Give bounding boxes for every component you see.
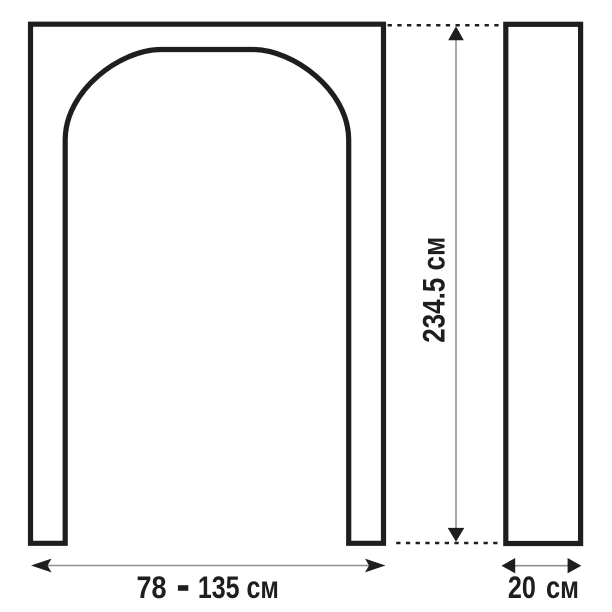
svg-text:78: 78 <box>137 569 167 605</box>
svg-text:135 см: 135 см <box>198 569 279 605</box>
svg-text:234.5 см: 234.5 см <box>416 237 452 343</box>
svg-text:см: см <box>546 569 579 605</box>
svg-text:20: 20 <box>508 569 536 605</box>
